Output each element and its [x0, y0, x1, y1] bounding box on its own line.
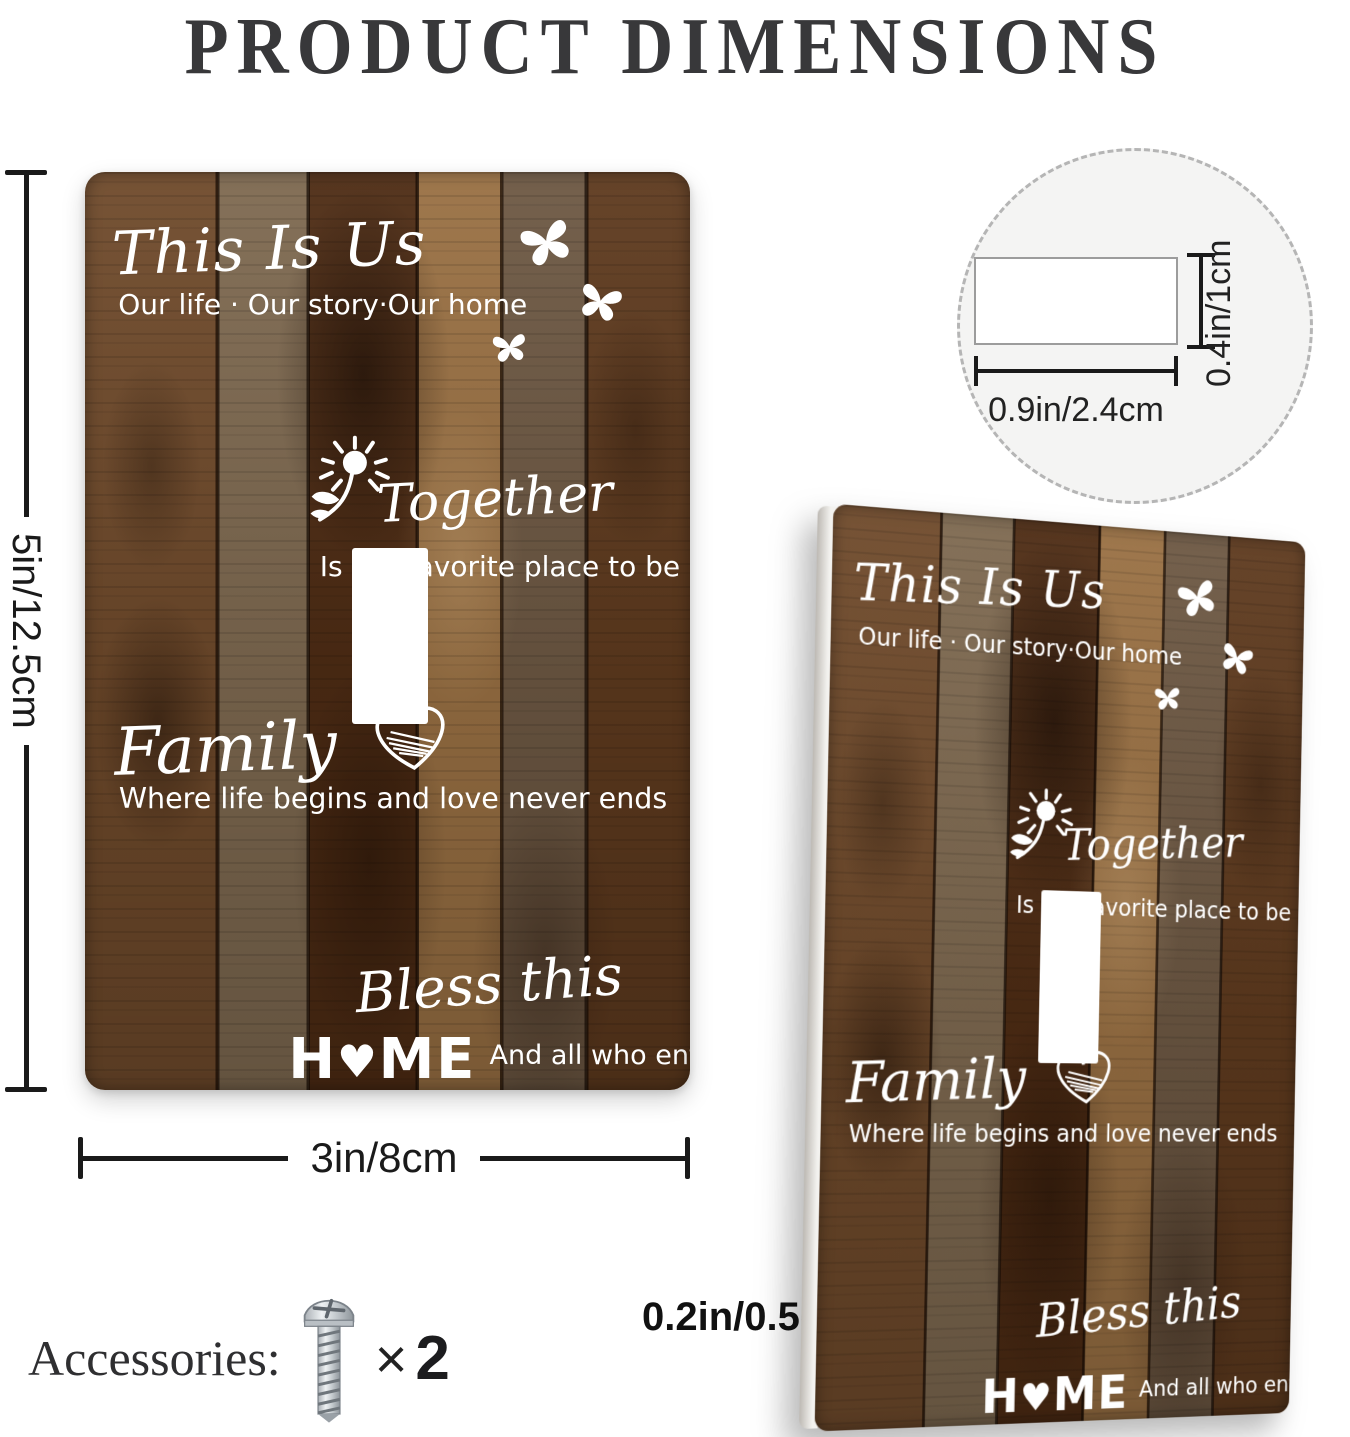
dimension-line	[978, 369, 1174, 373]
butterfly-icon	[488, 326, 531, 369]
home-subtext: And all who enter	[1139, 1372, 1306, 1400]
plate-together-text: Together	[1061, 817, 1243, 871]
page-title: PRODUCT DIMENSIONS	[0, 0, 1350, 93]
dimension-cap-bottom	[5, 1087, 47, 1092]
plate-bless-text: Bless this	[1035, 1276, 1243, 1349]
plate-subheading: Our life · Our story·Our home	[118, 288, 527, 321]
dimension-line-right	[480, 1156, 685, 1161]
height-dimension: 5in/12.5cm	[5, 170, 47, 1092]
plate-family-subtext: Where life begins and love never ends	[119, 782, 667, 815]
plate-artwork: This Is Us Our life · Our story·Our home…	[85, 172, 690, 1090]
plate-together-text: Together	[375, 463, 614, 535]
butterfly-icon	[1152, 681, 1184, 715]
plate-family-subtext: Where life begins and love never ends	[848, 1119, 1277, 1148]
switch-plate-front-view: This Is Us Our life · Our story·Our home…	[85, 172, 690, 1090]
plate-subheading: Our life · Our story·Our home	[858, 622, 1182, 670]
home-letters-me: ME	[379, 1027, 476, 1090]
plate-home-row: H♥ME And all who enter	[981, 1368, 1305, 1418]
plate-heading: This Is Us	[111, 209, 428, 290]
home-wordmark: H♥ME	[981, 1374, 1129, 1418]
screw-icon	[301, 1291, 357, 1425]
home-wordmark: H♥ME	[288, 1037, 476, 1083]
height-dimension-label: 5in/12.5cm	[6, 517, 46, 745]
plate-heading: This Is Us	[854, 553, 1107, 621]
dimension-cap-right	[1174, 356, 1178, 386]
accessories-row: Accessories: × 2	[28, 1286, 450, 1430]
butterfly-icon	[510, 207, 582, 279]
butterfly-icon	[1170, 569, 1224, 626]
plate-family-text: Family	[113, 706, 338, 791]
dimension-line-left	[83, 1156, 288, 1161]
plate-family-text: Family	[845, 1046, 1026, 1116]
butterfly-icon	[571, 273, 630, 332]
toggle-switch-cutout	[352, 548, 428, 723]
switch-plate-side-view: This Is Us Our life · Our story·Our home…	[815, 504, 1306, 1432]
home-subtext: And all who enter	[490, 1042, 690, 1069]
hole-height-label: 0.4in/1cm	[1200, 199, 1239, 427]
plate-artwork: This Is Us Our life · Our story·Our home…	[815, 504, 1306, 1432]
hole-width-dimension	[974, 355, 1178, 387]
home-letter-h: H	[288, 1027, 337, 1090]
home-letter-h: H	[981, 1369, 1021, 1425]
width-dimension-label: 3in/8cm	[288, 1137, 479, 1179]
dimension-line-lower	[24, 745, 29, 1087]
multiply-symbol: ×	[375, 1326, 408, 1391]
switch-plate-angled: This Is Us Our life · Our story·Our home…	[815, 504, 1306, 1432]
heart-glyph: ♥	[1019, 1376, 1053, 1421]
heart-glyph: ♥	[337, 1035, 379, 1088]
toggle-hole-rectangle	[974, 257, 1178, 345]
accessories-label: Accessories:	[28, 1329, 281, 1387]
plate-home-row: H♥ME And all who enter	[288, 1037, 690, 1083]
toggle-switch-cutout	[1038, 891, 1101, 1064]
home-letters-me: ME	[1052, 1365, 1129, 1422]
dimension-line-upper	[24, 175, 29, 517]
accessory-count: 2	[415, 1323, 449, 1394]
product-dimensions-page: PRODUCT DIMENSIONS 5in/12.5cm This Is Us…	[0, 0, 1350, 1437]
butterfly-icon	[1215, 634, 1259, 683]
dimension-cap-right	[685, 1137, 690, 1179]
plate-bless-text: Bless this	[353, 943, 625, 1026]
hole-width-label: 0.9in/2.4cm	[942, 391, 1210, 430]
toggle-hole-detail-circle: 0.9in/2.4cm 0.4in/1cm	[957, 148, 1313, 504]
width-dimension: 3in/8cm	[78, 1134, 690, 1182]
